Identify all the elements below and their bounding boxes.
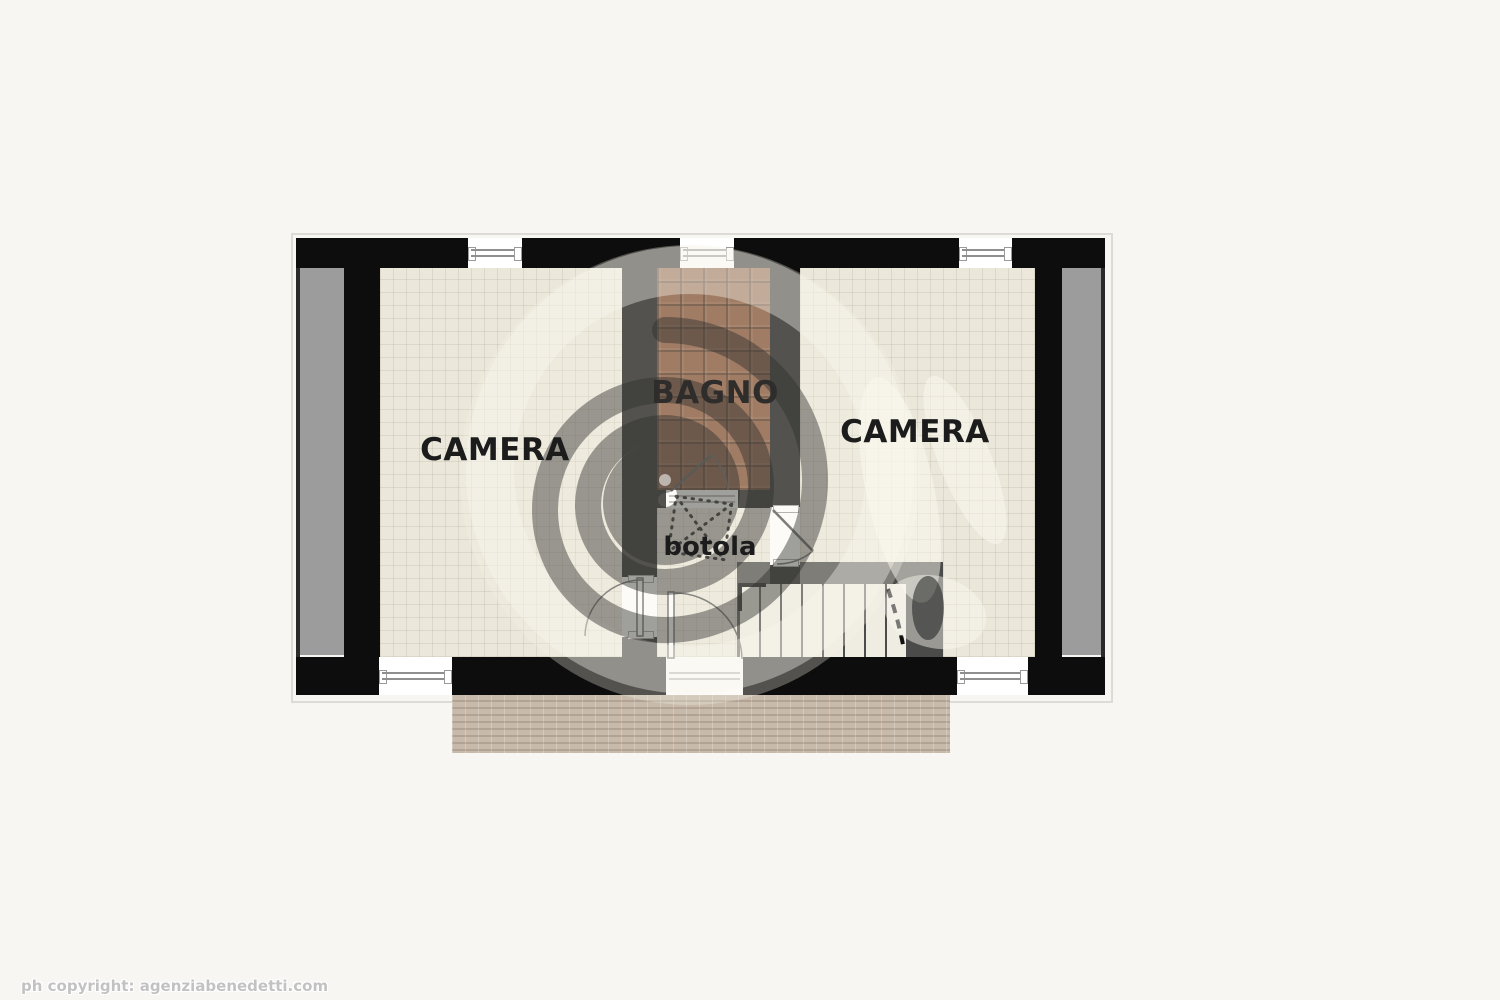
copyright-text: ph copyright: agenziabenedetti.com [21,977,328,995]
window-bottom-right [957,657,1028,695]
room-label-bagno: BAGNO [640,375,790,411]
room-label-camera-left: CAMERA [415,432,575,468]
door-bagno-gap [666,490,738,508]
wall-mid-left-upper [622,268,657,577]
balcony-left [300,268,344,655]
door-camera-right-gap [770,507,800,565]
wall-west [344,268,380,657]
wall-east [1035,268,1062,657]
balcony-right-edge [1101,268,1105,657]
terrace-paving [452,695,950,753]
staircase-treads [740,584,908,657]
floorplan-image: CAMERA BAGNO CAMERA botola ph copyright:… [0,0,1500,1000]
door-entry-gap [666,657,743,695]
room-label-camera-right: CAMERA [835,414,995,450]
door-camera-left-gap [622,577,657,637]
window-top-left [468,238,522,268]
window-top-right [959,238,1012,268]
room-label-botola: botola [650,532,770,562]
balcony-left-edge [296,268,300,657]
window-bottom-left [379,657,452,695]
balcony-right [1062,268,1101,655]
window-top-middle [680,238,734,268]
wall-bagno-east-lower [770,565,800,585]
wall-mid-left-lower [622,637,657,657]
